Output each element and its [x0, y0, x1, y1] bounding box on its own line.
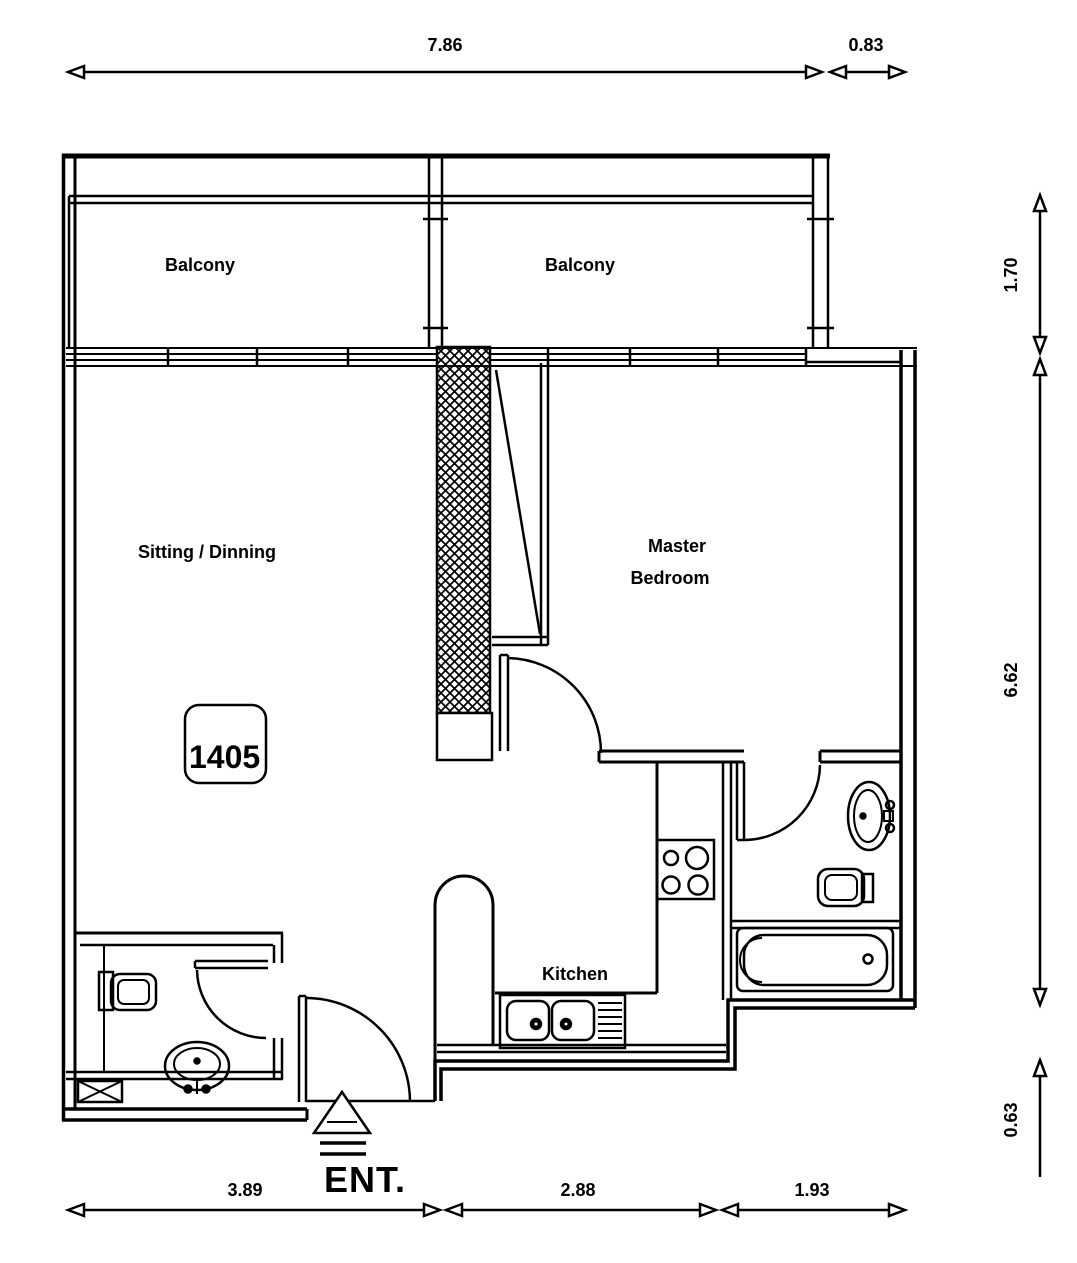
- floor-plan-drawing: 1405 Balcony Balcony Sitting / Dinning M…: [0, 0, 1077, 1263]
- dim-bottom-2: 2.88: [560, 1180, 595, 1200]
- shaft-base-box: [437, 713, 492, 760]
- entrance-door: [299, 996, 435, 1102]
- entrance-label: ENT.: [324, 1159, 406, 1200]
- room-label-balcony-right: Balcony: [545, 255, 615, 275]
- bedroom-walls: [599, 751, 901, 762]
- floor-plan-page: 1405 Balcony Balcony Sitting / Dinning M…: [0, 0, 1077, 1263]
- master-bathroom-toilet: [818, 869, 873, 906]
- master-bathroom-door: [737, 762, 820, 840]
- bedroom-door-arc: [508, 658, 601, 753]
- balcony-structure: [69, 156, 834, 348]
- dim-right-2: 6.62: [1001, 662, 1021, 697]
- bathtub: [737, 928, 893, 991]
- guest-bathroom-toilet: [99, 972, 156, 1010]
- guest-bathroom-door-arc: [197, 970, 266, 1038]
- duct-box: [78, 1081, 122, 1102]
- room-label-sitting-dining: Sitting / Dinning: [138, 542, 276, 562]
- master-bathroom-door-arc: [744, 765, 820, 840]
- dim-top-2: 0.83: [848, 35, 883, 55]
- dim-bottom-3: 1.93: [794, 1180, 829, 1200]
- master-bathroom-sink: [848, 782, 894, 850]
- room-label-master-line2: Bedroom: [630, 568, 709, 588]
- kitchen-peninsula: [435, 876, 493, 1061]
- kitchen-sink: [500, 995, 625, 1048]
- service-shaft: [437, 347, 492, 760]
- guest-bathroom-door: [195, 961, 268, 1038]
- bedroom-closet: [492, 363, 548, 645]
- dimension-right: 1.70 6.62 0.63: [1001, 195, 1046, 1177]
- dim-top-1: 7.86: [427, 35, 462, 55]
- room-labels: Balcony Balcony Sitting / Dinning Master…: [138, 255, 710, 1200]
- entrance-door-arc: [306, 998, 410, 1102]
- stove: [657, 840, 714, 899]
- guest-bathroom-sink: [165, 1042, 229, 1094]
- drainboard: [598, 1003, 622, 1038]
- dim-bottom-1: 3.89: [227, 1180, 262, 1200]
- bedroom-door: [500, 655, 601, 753]
- dimension-top: 7.86 0.83: [68, 35, 905, 78]
- unit-number: 1405: [189, 739, 260, 775]
- kitchen-walls: [437, 762, 726, 1052]
- window-band: [66, 347, 917, 367]
- dimension-bottom: 3.89 2.88 1.93: [68, 1180, 905, 1216]
- closet-door-diagonal: [496, 370, 540, 634]
- room-label-master-line1: Master: [648, 536, 706, 556]
- dim-right-1: 1.70: [1001, 257, 1021, 292]
- room-label-balcony-left: Balcony: [165, 255, 235, 275]
- room-label-kitchen: Kitchen: [542, 964, 608, 984]
- unit-badge: 1405: [185, 705, 266, 783]
- dim-right-3: 0.63: [1001, 1102, 1021, 1137]
